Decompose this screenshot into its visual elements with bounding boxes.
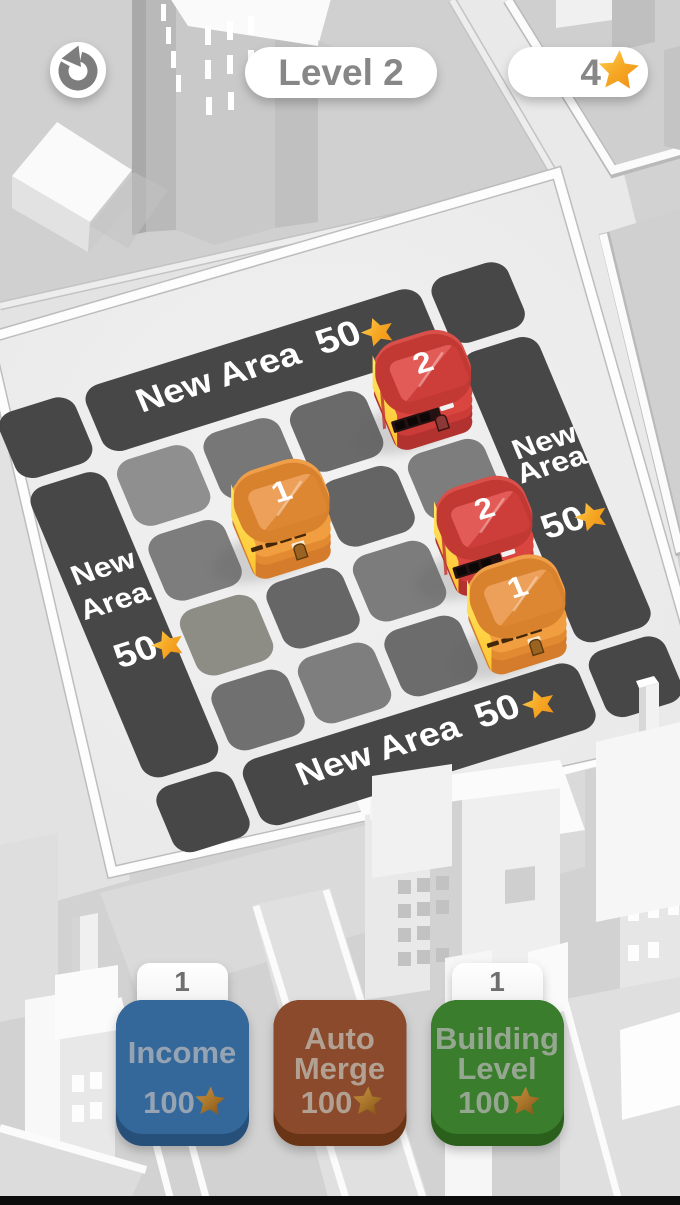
svg-text:Merge: Merge — [294, 1051, 385, 1086]
svg-text:100: 100 — [458, 1085, 510, 1120]
svg-text:100: 100 — [301, 1085, 353, 1120]
svg-text:Level 2: Level 2 — [278, 52, 403, 93]
svg-text:1: 1 — [489, 966, 505, 997]
svg-text:Level: Level — [457, 1051, 536, 1086]
svg-text:Income: Income — [128, 1035, 237, 1070]
svg-text:100: 100 — [143, 1085, 195, 1120]
svg-text:4: 4 — [580, 52, 601, 93]
svg-text:1: 1 — [174, 966, 190, 997]
